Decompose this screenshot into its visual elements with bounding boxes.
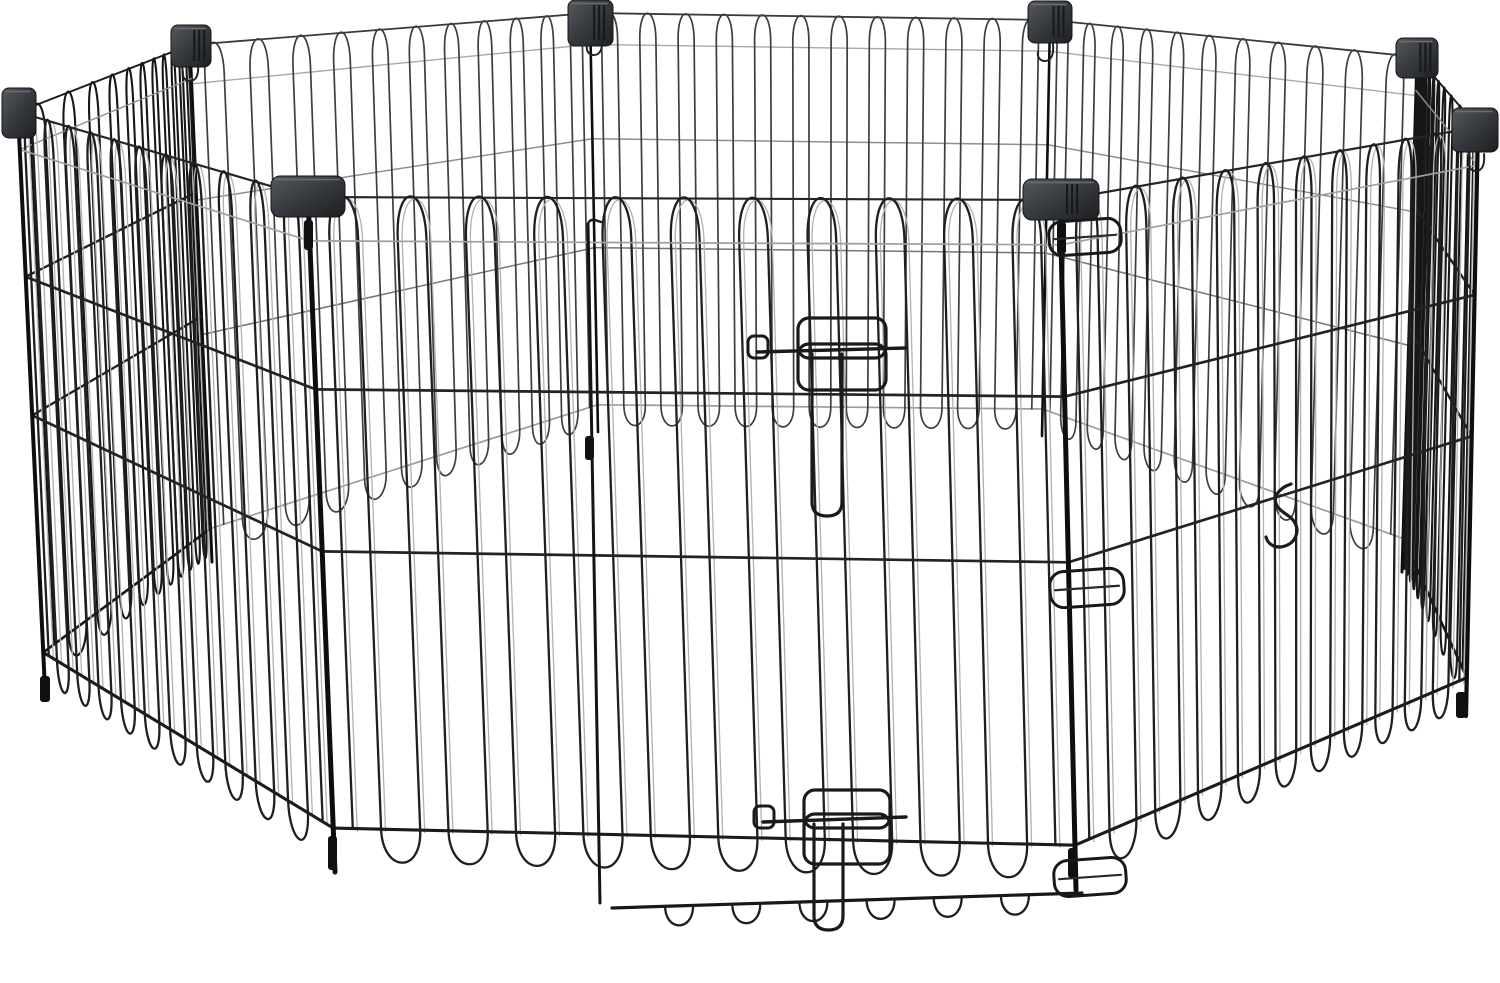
door-latch-bottom <box>754 790 906 930</box>
door-hinge-bracket <box>1053 857 1127 898</box>
product-photo-stage <box>0 0 1500 983</box>
corner-back-mid-left <box>568 0 613 46</box>
corner-back-mid-right <box>1028 1 1072 43</box>
corner-front-left <box>271 176 345 217</box>
corner-back-right <box>1396 38 1438 78</box>
ferrule-sleeve <box>1456 692 1466 718</box>
ferrule-sleeve <box>304 220 313 250</box>
panel-hook-wire <box>1038 44 1053 61</box>
playpen-illustration <box>0 0 1500 983</box>
panel-front-left <box>18 112 333 840</box>
corner-back-left <box>171 25 211 67</box>
door-seam-edge <box>588 220 601 903</box>
front-panels <box>18 45 1478 877</box>
corner-right <box>1452 108 1498 152</box>
ferrule-sleeve <box>328 836 337 870</box>
corner-left <box>2 88 36 138</box>
back-panels <box>190 13 1417 549</box>
corner-front-right <box>1023 179 1099 220</box>
ferrule-sleeve <box>40 676 50 702</box>
door-bottom-rail <box>612 893 1082 925</box>
door-hinge-bracket <box>1049 567 1125 608</box>
ferrule-sleeve <box>1068 848 1077 878</box>
panel-front-door <box>308 196 1075 877</box>
